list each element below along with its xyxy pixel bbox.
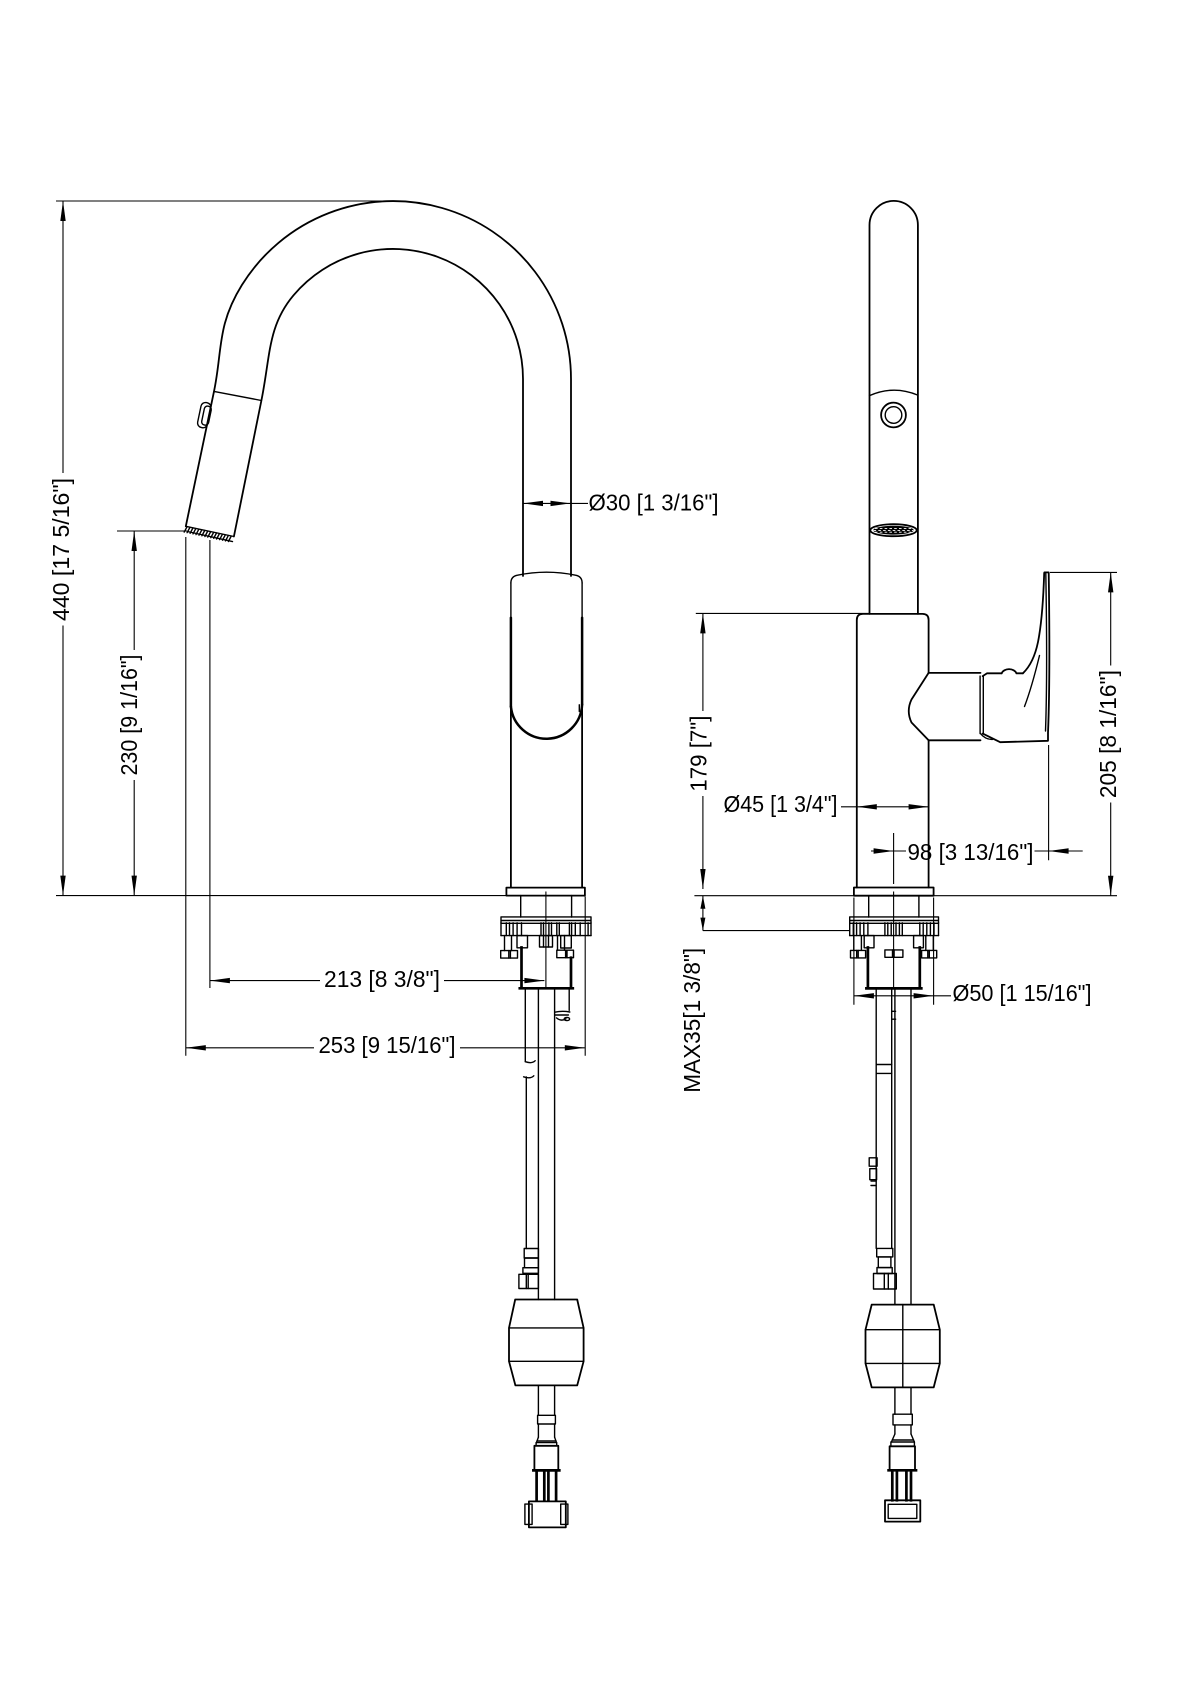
svg-text:Ø30 [1 3/16"]: Ø30 [1 3/16"] [589,490,719,516]
svg-text:253 [9 15/16"]: 253 [9 15/16"] [319,1032,456,1058]
svg-text:205 [8 1/16"]: 205 [8 1/16"] [1095,670,1121,798]
svg-text:Ø45 [1 3/4"]: Ø45 [1 3/4"] [724,791,838,817]
svg-text:179 [7"]: 179 [7"] [686,716,712,792]
svg-text:440 [17 5/16"]: 440 [17 5/16"] [48,478,74,621]
svg-text:MAX35[1 3/8"]: MAX35[1 3/8"] [679,948,705,1093]
svg-text:230 [9 1/16"]: 230 [9 1/16"] [116,655,142,776]
svg-text:98 [3 13/16"]: 98 [3 13/16"] [908,839,1034,865]
svg-text:Ø50 [1 15/16"]: Ø50 [1 15/16"] [953,980,1092,1006]
svg-text:213 [8 3/8"]: 213 [8 3/8"] [324,966,440,992]
